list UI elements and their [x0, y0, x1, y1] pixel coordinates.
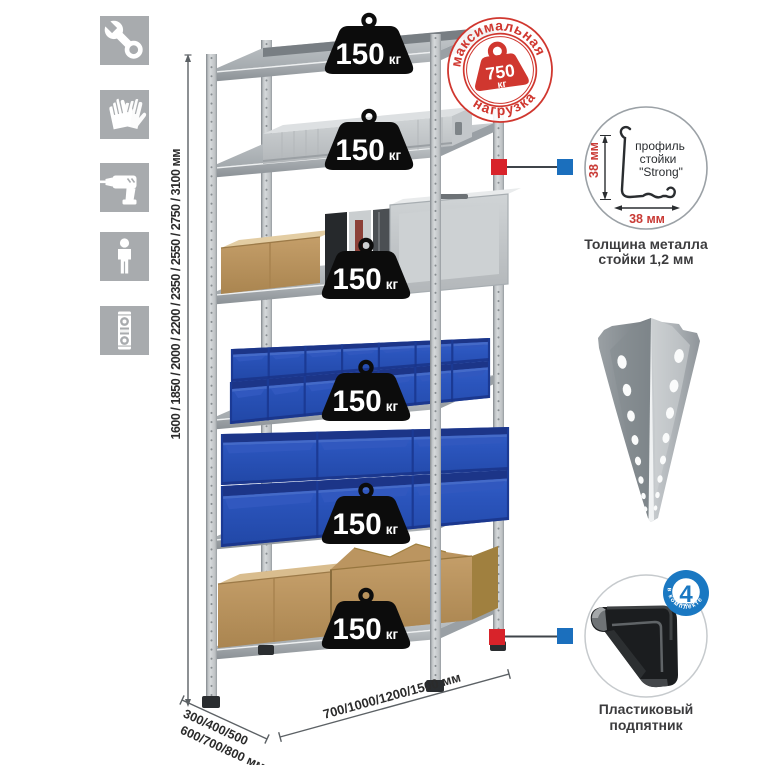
svg-text:1600 / 1850 / 2000 / 2200 / 23: 1600 / 1850 / 2000 / 2200 / 2350 / 2550 … — [169, 149, 183, 440]
svg-text:Толщина металла: Толщина металла — [584, 236, 708, 252]
svg-text:38 мм: 38 мм — [587, 142, 601, 178]
svg-text:38 мм: 38 мм — [629, 212, 665, 226]
svg-text:стойки: стойки — [640, 152, 677, 166]
svg-text:Пластиковый: Пластиковый — [599, 701, 694, 717]
svg-text:кг: кг — [497, 79, 508, 91]
svg-text:"Strong": "Strong" — [639, 165, 683, 179]
svg-text:профиль: профиль — [635, 139, 685, 153]
svg-text:подпятник: подпятник — [609, 717, 683, 733]
svg-text:стойки 1,2 мм: стойки 1,2 мм — [598, 251, 693, 267]
